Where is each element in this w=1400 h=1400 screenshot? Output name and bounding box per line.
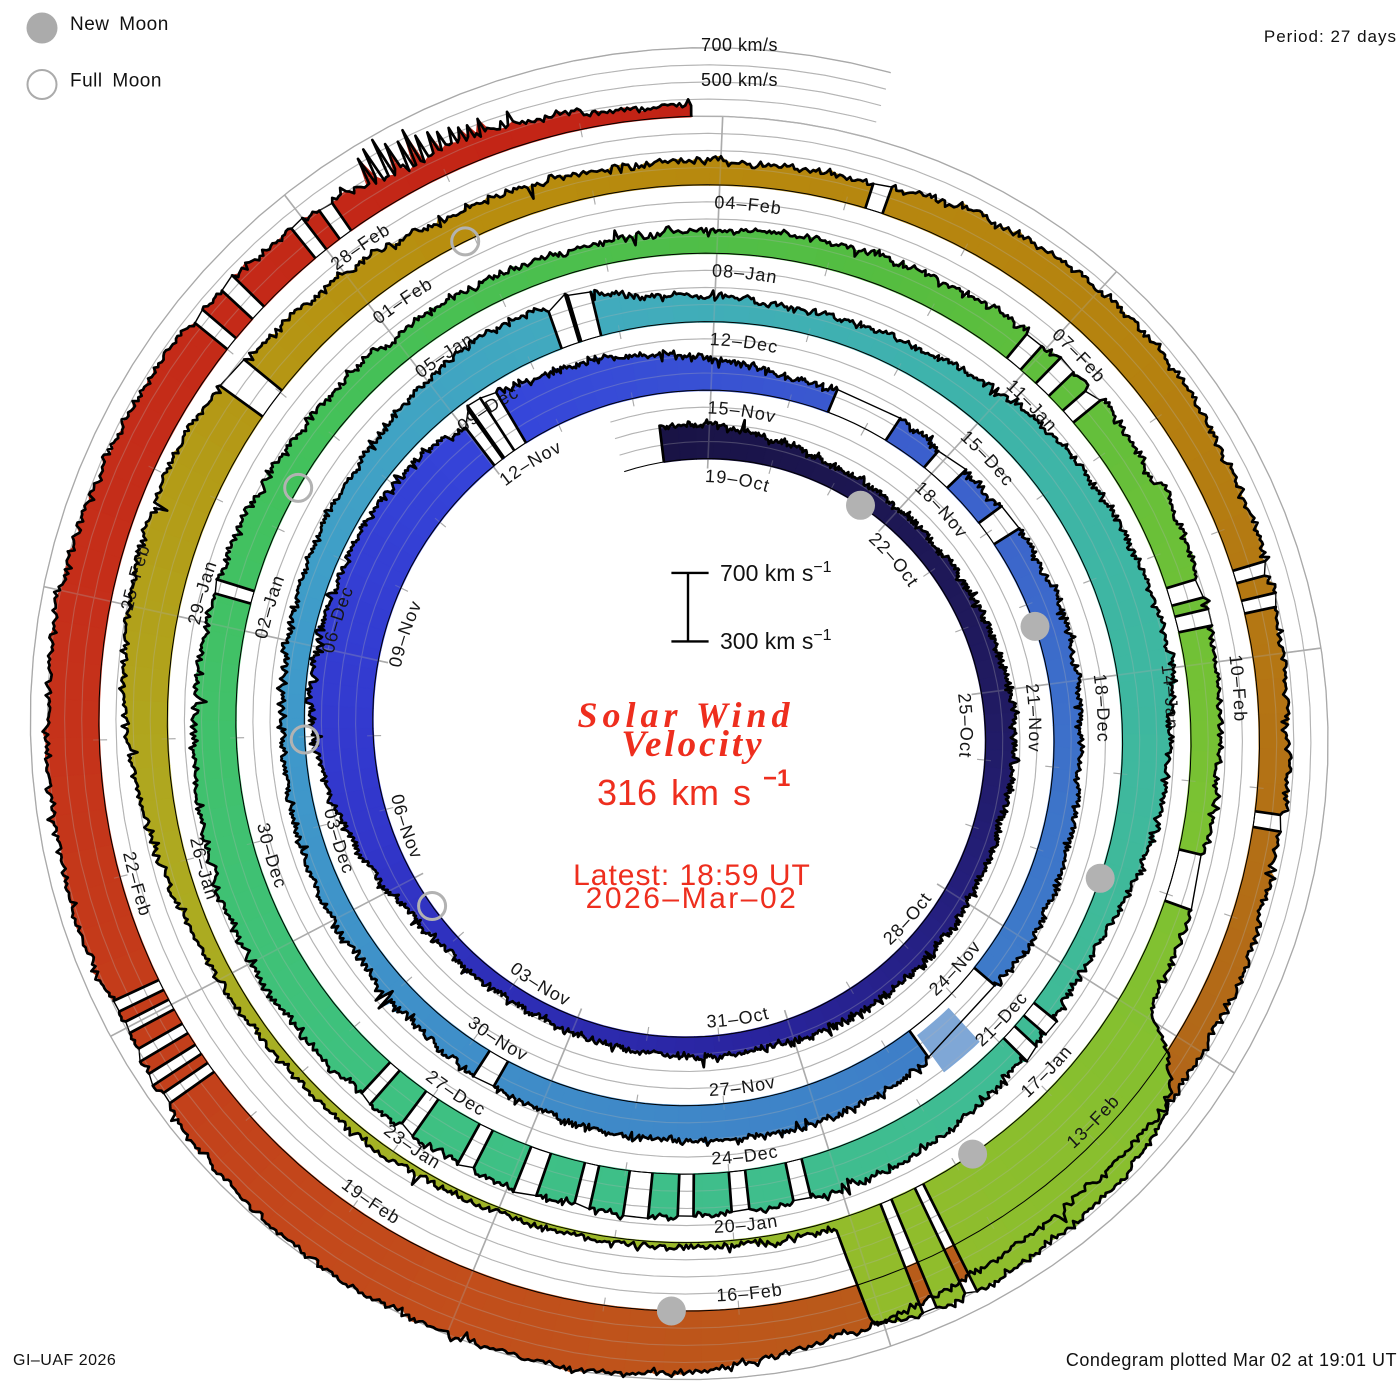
svg-text:Full Moon: Full Moon xyxy=(70,71,162,92)
svg-text:GI–UAF 2026: GI–UAF 2026 xyxy=(13,1352,116,1369)
svg-text:Period: 27 days: Period: 27 days xyxy=(1264,27,1397,46)
svg-text:700 km/s: 700 km/s xyxy=(701,35,778,55)
svg-text:500 km/s: 500 km/s xyxy=(701,70,778,90)
svg-text:316 km s: 316 km s xyxy=(597,772,751,813)
svg-text:−1: −1 xyxy=(763,765,790,792)
svg-text:25–Oct: 25–Oct xyxy=(954,692,977,759)
svg-text:2026–Mar–02: 2026–Mar–02 xyxy=(586,882,799,915)
svg-text:Condegram plotted Mar 02 at 19: Condegram plotted Mar 02 at 19:01 UT xyxy=(1066,1350,1397,1370)
svg-text:New Moon: New Moon xyxy=(70,14,169,35)
svg-text:Velocity: Velocity xyxy=(621,724,764,765)
